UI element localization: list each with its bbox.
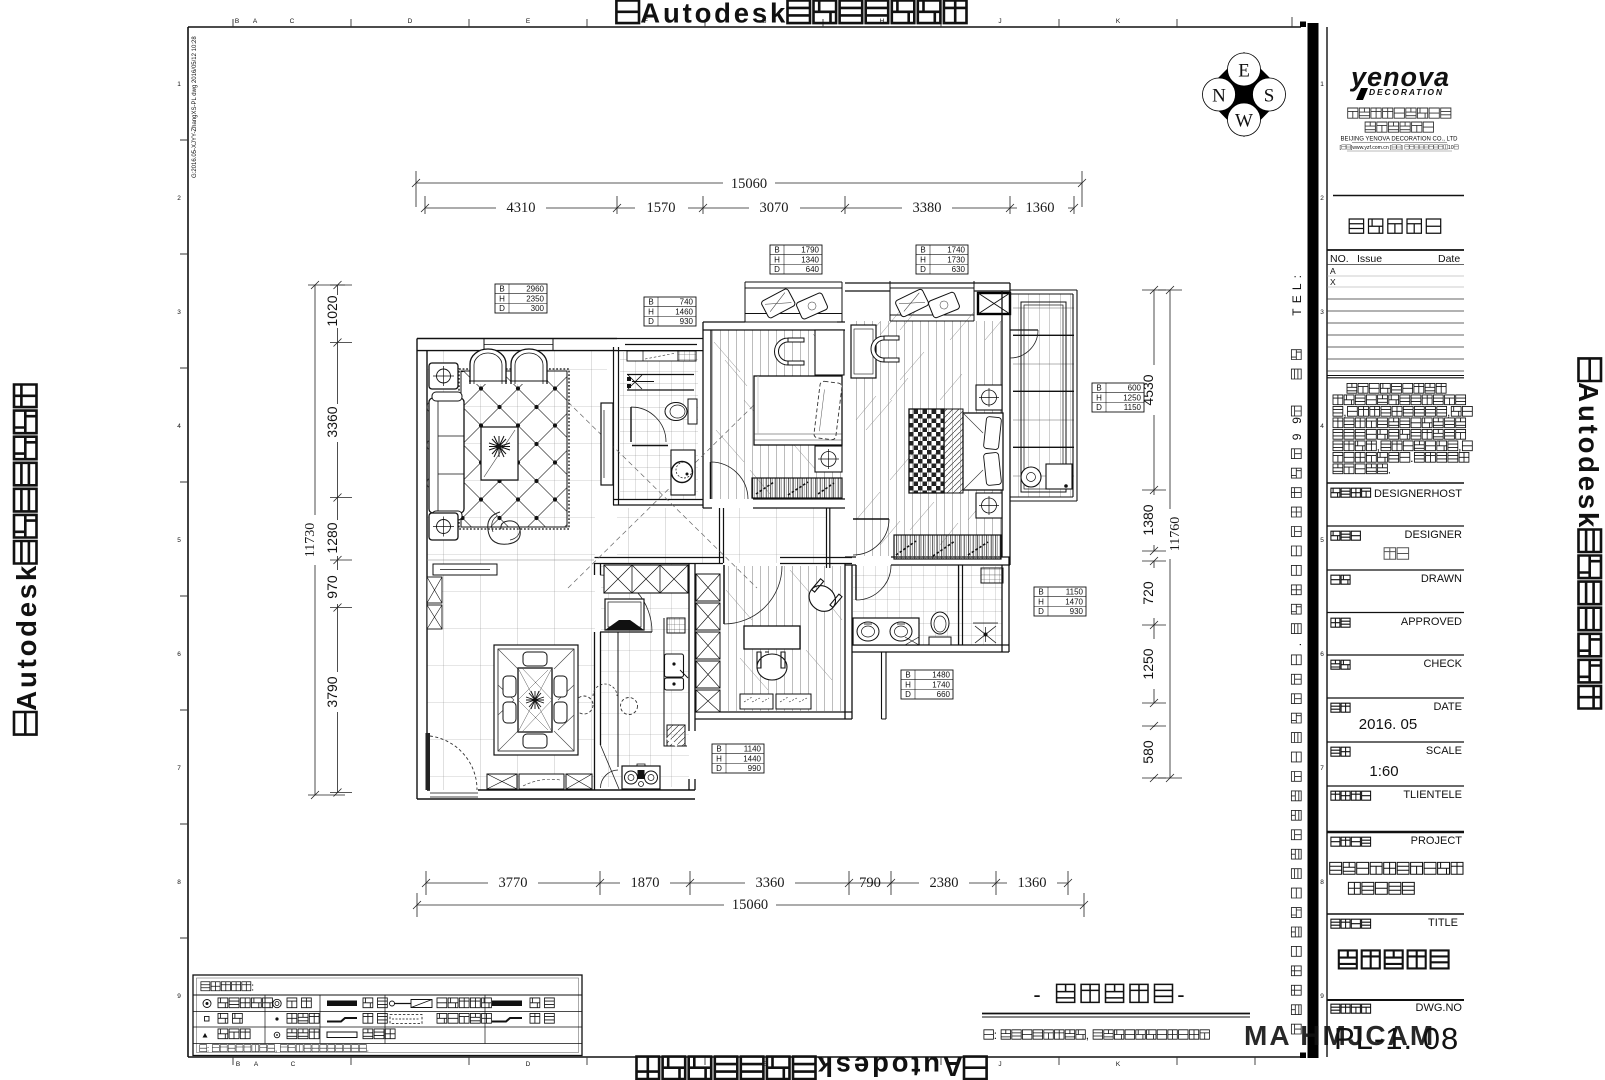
svg-text:D: D	[905, 690, 911, 699]
svg-text:,: ,	[1377, 440, 1380, 454]
svg-text:630: 630	[952, 265, 966, 274]
svg-text:7: 7	[177, 765, 181, 772]
svg-text:1340: 1340	[801, 255, 819, 264]
svg-text:,: ,	[1086, 1030, 1089, 1042]
svg-text:2960: 2960	[526, 285, 544, 294]
svg-text:C: C	[290, 18, 295, 25]
svg-text:TLIENTELE: TLIENTELE	[1403, 789, 1462, 801]
svg-text:11730: 11730	[303, 523, 318, 557]
svg-text:H: H	[499, 294, 505, 303]
svg-text:D: D	[526, 1061, 531, 1068]
svg-text:9: 9	[1320, 993, 1324, 1000]
svg-text:3360: 3360	[324, 406, 340, 437]
svg-text:X: X	[1330, 277, 1336, 287]
svg-text:DECORATION: DECORATION	[1369, 87, 1443, 97]
svg-text::: :	[251, 982, 254, 994]
svg-text:,: ,	[1447, 405, 1450, 419]
svg-text:1360: 1360	[1018, 875, 1047, 891]
svg-text:580: 580	[1140, 740, 1156, 764]
svg-text:B: B	[1038, 588, 1043, 597]
svg-text:H: H	[920, 255, 926, 264]
svg-text:4: 4	[1320, 423, 1324, 430]
svg-text:H: H	[1096, 393, 1102, 402]
svg-text:1790: 1790	[801, 246, 819, 255]
svg-text:SCALE: SCALE	[1426, 745, 1462, 757]
svg-text:B: B	[920, 246, 925, 255]
svg-text:790: 790	[859, 875, 881, 891]
svg-text::: :	[207, 1044, 209, 1054]
svg-text:4310: 4310	[507, 200, 536, 216]
svg-text:15060: 15060	[731, 176, 767, 192]
svg-text:7: 7	[1320, 765, 1324, 772]
svg-text:1570: 1570	[647, 200, 676, 216]
svg-text:4: 4	[177, 423, 181, 430]
svg-text:.: .	[367, 1044, 369, 1054]
svg-text:DWG.NO: DWG.NO	[1416, 1002, 1463, 1014]
svg-text:1150: 1150	[1066, 588, 1084, 597]
svg-text:8: 8	[177, 879, 181, 886]
svg-text:1460: 1460	[675, 307, 693, 316]
svg-text:B: B	[716, 745, 721, 754]
svg-text:10: 10	[1448, 145, 1454, 151]
svg-text:D: D	[1096, 403, 1102, 412]
svg-text:3770: 3770	[499, 875, 528, 891]
svg-text:970: 970	[324, 575, 340, 599]
svg-text:5: 5	[1320, 537, 1324, 544]
svg-text:D: D	[499, 304, 505, 313]
svg-text::: :	[994, 1030, 997, 1042]
svg-text:B: B	[1096, 384, 1101, 393]
svg-text:1740: 1740	[947, 246, 965, 255]
svg-text:PROJECT: PROJECT	[1411, 835, 1463, 847]
svg-text:3360: 3360	[756, 875, 785, 891]
svg-text:NO.: NO.	[1330, 253, 1349, 265]
svg-text:600: 600	[1128, 384, 1142, 393]
svg-text:B: B	[499, 285, 504, 294]
svg-text:1: 1	[1320, 81, 1324, 88]
svg-text:9: 9	[177, 993, 181, 1000]
svg-text:3070: 3070	[760, 200, 789, 216]
svg-text:W: W	[1235, 111, 1253, 132]
svg-text:DATE: DATE	[1433, 701, 1462, 713]
svg-text:B: B	[236, 1061, 240, 1068]
svg-text:H: H	[905, 680, 911, 689]
svg-text:.: .	[1290, 643, 1304, 646]
svg-text:CHECK: CHECK	[1423, 658, 1462, 670]
svg-text:B: B	[774, 246, 779, 255]
svg-text:B: B	[648, 298, 653, 307]
svg-text:D: D	[920, 265, 926, 274]
svg-text:640: 640	[806, 265, 820, 274]
svg-text:K: K	[1116, 1061, 1121, 1068]
svg-text:,: ,	[1343, 405, 1346, 419]
svg-text:DRAWN: DRAWN	[1421, 573, 1462, 585]
svg-text:930: 930	[680, 317, 694, 326]
svg-text:Date: Date	[1438, 253, 1460, 265]
svg-text:]www.yzf.com.cn [: ]www.yzf.com.cn [	[1351, 145, 1392, 151]
svg-text:-: -	[1033, 982, 1040, 1007]
svg-text:2: 2	[1320, 195, 1324, 202]
svg-text:H: H	[774, 255, 780, 264]
svg-text:Issue: Issue	[1357, 253, 1382, 265]
svg-text:1280: 1280	[324, 522, 340, 553]
svg-text:-: -	[1177, 982, 1184, 1007]
svg-text:G:2016.05-XJYY-ZhangXS-PL dwg: G:2016.05-XJYY-ZhangXS-PL dwg 2016/05/12…	[192, 36, 198, 178]
svg-text:3: 3	[177, 309, 181, 316]
svg-text:D: D	[408, 18, 413, 25]
svg-text:15060: 15060	[732, 897, 768, 913]
svg-text:1: 1	[177, 81, 181, 88]
svg-text:H: H	[648, 307, 654, 316]
svg-text:A: A	[1330, 266, 1336, 276]
svg-text:300: 300	[531, 304, 545, 313]
svg-text:1250: 1250	[1123, 393, 1141, 402]
svg-text:2350: 2350	[526, 294, 544, 303]
svg-text:DESIGNERHOST: DESIGNERHOST	[1374, 488, 1462, 500]
svg-text:S: S	[1264, 86, 1275, 107]
svg-text:1250: 1250	[1140, 648, 1156, 679]
svg-text:2: 2	[177, 195, 181, 202]
svg-text:J: J	[998, 18, 1001, 25]
svg-text:2016. 05: 2016. 05	[1359, 716, 1417, 733]
svg-text:J: J	[998, 1061, 1001, 1068]
svg-text:1480: 1480	[932, 671, 950, 680]
svg-text:11760: 11760	[1168, 517, 1183, 551]
svg-text:PL-1. 08: PL-1. 08	[1334, 1021, 1459, 1056]
svg-text:DESIGNER: DESIGNER	[1405, 529, 1463, 541]
svg-text:B: B	[235, 18, 239, 25]
svg-text:BEIJING YENOVA DECORATION CO.,: BEIJING YENOVA DECORATION CO., LTD	[1341, 137, 1459, 143]
svg-text:1140: 1140	[744, 745, 762, 754]
svg-text:3380: 3380	[913, 200, 942, 216]
svg-text:.: .	[1388, 463, 1391, 477]
svg-text:1380: 1380	[1140, 504, 1156, 535]
svg-text:1870: 1870	[631, 875, 660, 891]
svg-text:660: 660	[937, 690, 951, 699]
svg-text:D: D	[716, 764, 722, 773]
svg-text:990: 990	[748, 764, 762, 773]
svg-text:A: A	[253, 18, 258, 25]
svg-text:,: ,	[275, 1044, 277, 1054]
svg-text:APPROVED: APPROVED	[1401, 616, 1462, 628]
svg-text:1440: 1440	[743, 754, 761, 763]
svg-text:D: D	[648, 317, 654, 326]
svg-text:1470: 1470	[1065, 597, 1083, 606]
svg-text:C: C	[291, 1061, 296, 1068]
svg-text:930: 930	[1070, 607, 1084, 616]
svg-text:B: B	[905, 671, 910, 680]
svg-text:6: 6	[177, 651, 181, 658]
svg-text:TITLE: TITLE	[1428, 917, 1458, 929]
svg-text:1:60: 1:60	[1369, 763, 1398, 780]
svg-text:A: A	[254, 1061, 259, 1068]
svg-text:,: ,	[1458, 440, 1461, 454]
svg-text:740: 740	[680, 298, 694, 307]
svg-text:6: 6	[1320, 651, 1324, 658]
svg-text:3: 3	[1320, 309, 1324, 316]
svg-text:1740: 1740	[932, 680, 950, 689]
svg-text:K: K	[1116, 18, 1121, 25]
svg-text:1150: 1150	[1124, 403, 1142, 412]
svg-text:8: 8	[1320, 879, 1324, 886]
svg-text:2380: 2380	[930, 875, 959, 891]
svg-text:H: H	[716, 754, 722, 763]
svg-text:1730: 1730	[947, 255, 965, 264]
svg-text:3790: 3790	[324, 676, 340, 707]
svg-text:720: 720	[1140, 581, 1156, 605]
svg-text:E: E	[1238, 61, 1250, 82]
svg-text:1360: 1360	[1026, 200, 1055, 216]
svg-text:D: D	[1038, 607, 1044, 616]
svg-text:5: 5	[177, 537, 181, 544]
svg-text:D: D	[774, 265, 780, 274]
svg-text:1020: 1020	[324, 295, 340, 326]
svg-text:E: E	[526, 18, 531, 25]
svg-text:H: H	[1038, 597, 1044, 606]
svg-text:.: .	[1410, 451, 1413, 465]
svg-text:N: N	[1212, 86, 1226, 107]
